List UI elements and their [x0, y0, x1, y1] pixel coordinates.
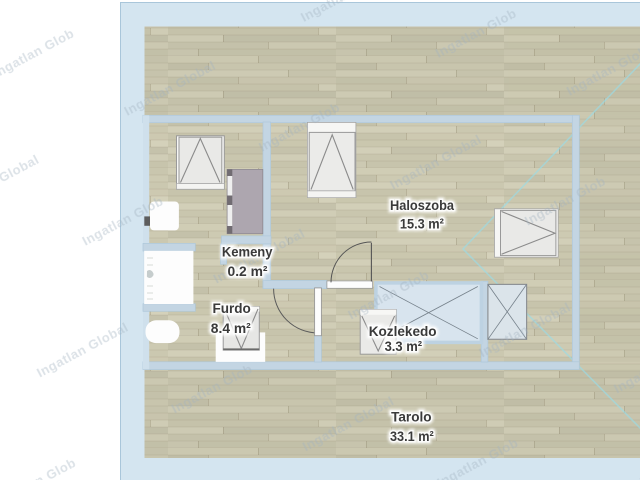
svg-text:33.1 m²: 33.1 m²: [390, 429, 434, 445]
svg-text:Kozlekedo: Kozlekedo: [369, 324, 437, 340]
svg-text:3.3 m²: 3.3 m²: [385, 339, 423, 355]
svg-text:Tarolo: Tarolo: [391, 410, 432, 426]
svg-text:Kemeny: Kemeny: [222, 245, 273, 261]
svg-text:Haloszoba: Haloszoba: [390, 198, 454, 214]
svg-text:8.4 m²: 8.4 m²: [211, 321, 251, 337]
svg-text:0.2 m²: 0.2 m²: [228, 264, 268, 280]
svg-text:15.3 m²: 15.3 m²: [400, 217, 444, 233]
svg-text:Furdo: Furdo: [213, 301, 252, 317]
